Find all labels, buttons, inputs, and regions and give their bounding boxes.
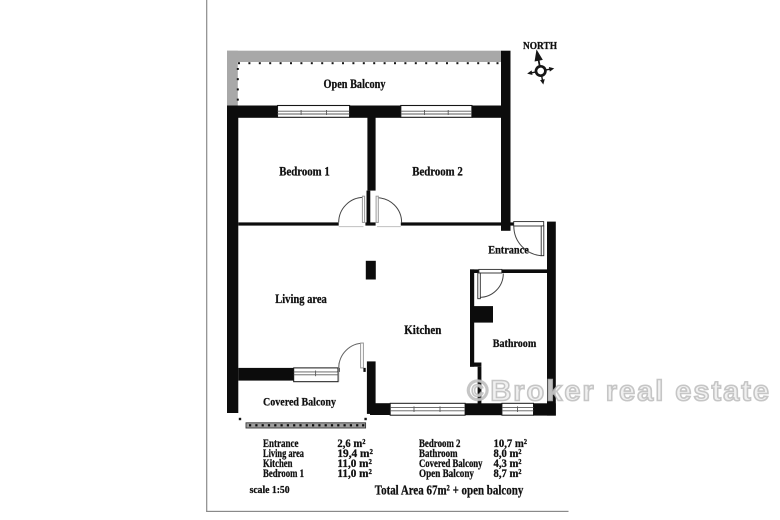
svg-text:scale 1:50: scale 1:50 [250,485,290,496]
svg-text:©Broker real estate: ©Broker real estate [467,376,769,408]
svg-text:Bedroom 1: Bedroom 1 [279,164,330,179]
svg-text:Bedroom 1: Bedroom 1 [263,468,304,480]
svg-text:Open Balcony: Open Balcony [324,76,386,91]
svg-text:Living area: Living area [275,291,327,306]
svg-text:8,7 m²: 8,7 m² [494,468,523,480]
svg-text:11,0 m²: 11,0 m² [337,468,372,480]
svg-text:Entrance: Entrance [488,243,529,257]
svg-text:NORTH: NORTH [523,41,557,52]
svg-text:Covered Balcony: Covered Balcony [263,394,336,408]
svg-text:Total Area 67m² + open balcon: Total Area 67m² + open balcony [375,484,524,499]
svg-text:Bathroom: Bathroom [493,336,537,350]
svg-text:Open Balcony: Open Balcony [419,468,474,480]
svg-text:Bedroom 2: Bedroom 2 [412,164,463,179]
svg-text:Kitchen: Kitchen [404,322,442,337]
